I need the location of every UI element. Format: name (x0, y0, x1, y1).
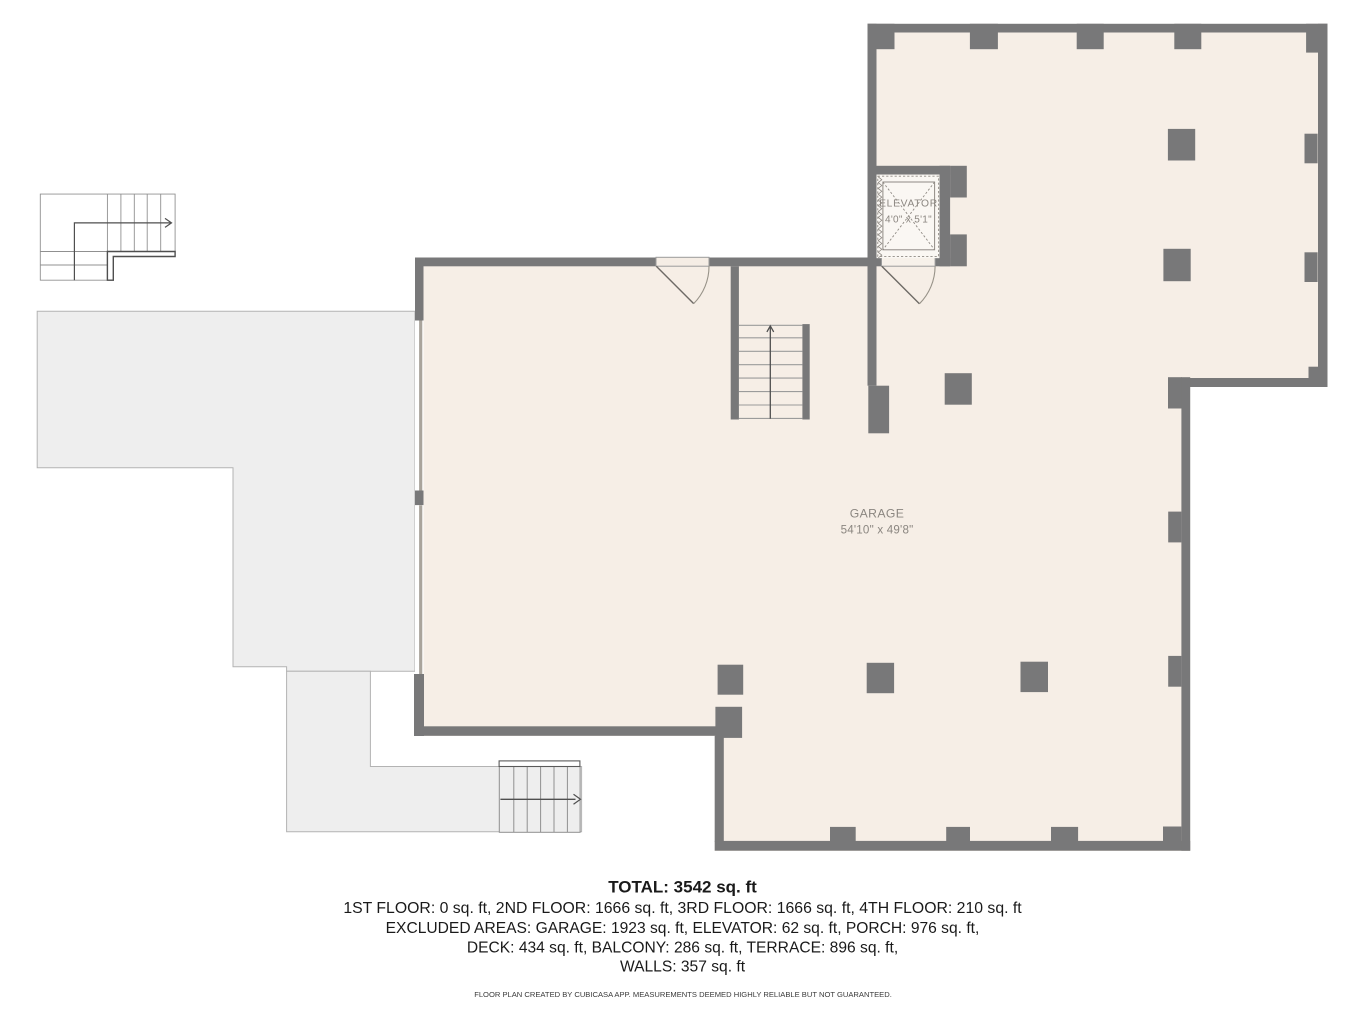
svg-text:1ST FLOOR: 0 sq. ft, 2ND FLOOR: 1ST FLOOR: 0 sq. ft, 2ND FLOOR: 1666 sq.… (343, 900, 1022, 917)
svg-text:WALLS: 357 sq. ft: WALLS: 357 sq. ft (620, 959, 746, 976)
svg-text:GARAGE: GARAGE (850, 507, 905, 521)
svg-text:4'0" x 5'1": 4'0" x 5'1" (885, 215, 932, 226)
svg-text:EXCLUDED AREAS: GARAGE: 1923 s: EXCLUDED AREAS: GARAGE: 1923 sq. ft, ELE… (386, 920, 980, 937)
svg-text:ELEVATOR: ELEVATOR (879, 199, 938, 210)
svg-text:54'10" x 49'8": 54'10" x 49'8" (841, 524, 914, 537)
svg-text:DECK: 434 sq. ft, BALCONY: 286: DECK: 434 sq. ft, BALCONY: 286 sq. ft, T… (467, 940, 898, 957)
svg-text:TOTAL: 3542 sq. ft: TOTAL: 3542 sq. ft (608, 878, 757, 897)
svg-text:FLOOR PLAN CREATED BY CUBICASA: FLOOR PLAN CREATED BY CUBICASA APP. MEAS… (474, 990, 892, 999)
